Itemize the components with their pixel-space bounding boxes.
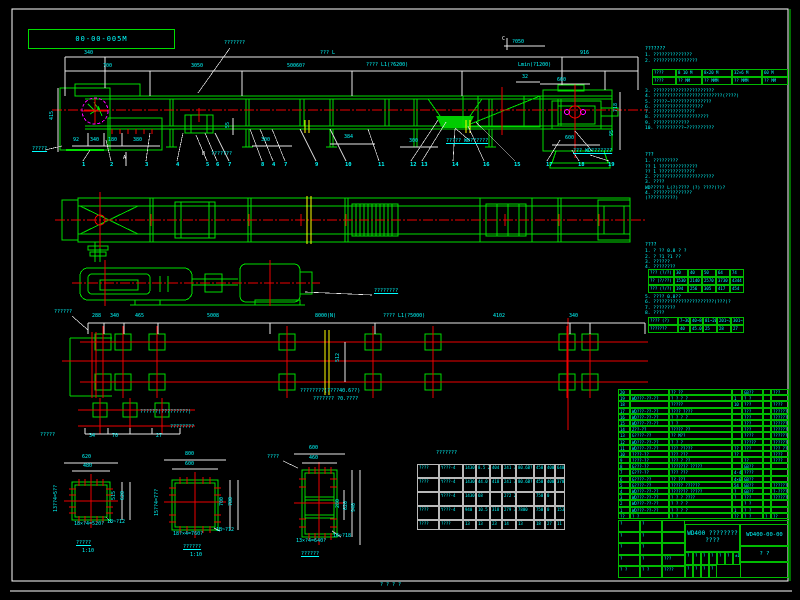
- dim-label: 940: [352, 503, 357, 512]
- dim-label: 600: [185, 462, 194, 467]
- dim-label: 8000(N): [315, 314, 336, 319]
- length-table-cell: 201~300: [717, 317, 731, 325]
- blank-cell: [740, 562, 789, 578]
- item-balloon: 12: [410, 162, 417, 168]
- item-balloon: 17: [546, 162, 553, 168]
- motor-table-row: ????????1313231413182711: [417, 520, 565, 530]
- rev-row: ??: [618, 520, 685, 532]
- dim-label: 620: [121, 491, 126, 500]
- dim-label: 718: [614, 103, 619, 112]
- motor-table-cell: ????: [439, 520, 463, 530]
- dim-label: ?????: [32, 147, 47, 152]
- dim-label: 620: [82, 455, 91, 460]
- dim-label: 600: [309, 446, 318, 451]
- approval-cell: ? ?: [740, 546, 789, 562]
- bom-cell: ? ?: [669, 513, 732, 519]
- sig-cell: ?: [725, 552, 733, 565]
- dim-label: 660: [557, 78, 566, 83]
- motor-table-cell: 450: [534, 478, 545, 492]
- item-balloon: 9: [315, 162, 318, 168]
- motor-table-cell: 450: [534, 464, 545, 478]
- motor-table-cell: 10.5 -5: [476, 506, 490, 520]
- dim-label: 515: [112, 491, 117, 500]
- item-balloon: 3: [145, 162, 148, 168]
- item-balloon: 8: [261, 162, 264, 168]
- notes-specs-cont: 5. ???? 0.8??6. ??????????????????????(?…: [645, 295, 731, 316]
- dim-label: 13×?4=640?: [296, 539, 326, 544]
- length-table-cell: 40~80: [690, 317, 703, 325]
- dim-label: 465: [135, 314, 144, 319]
- notes-lines: 3. ??????????????????????4. ????????????…: [645, 89, 739, 131]
- motor-table-cell: 14: [502, 520, 516, 530]
- speed-table-cell: 2140: [688, 277, 702, 285]
- note-line: (??????????): [645, 196, 725, 201]
- motor-table-row: Y???-4143068272 2347500: [417, 492, 565, 506]
- dim-label: 460: [309, 456, 318, 461]
- sig-cell: ?: [709, 565, 717, 578]
- item-balloon: 15: [514, 162, 521, 168]
- rev-cell: ?: [640, 543, 662, 555]
- length-table-cell: ???????: [648, 325, 678, 333]
- motor-table-cell: Y???-4: [439, 492, 463, 506]
- speed-table-cell: ?? (?/??): [648, 277, 674, 285]
- speed-table-cell: 50: [702, 269, 716, 277]
- motor-table-cell: Y???-4: [439, 478, 463, 492]
- dim-label: ???????: [211, 152, 232, 157]
- speed-table-cell: ??? (?/?): [648, 269, 674, 277]
- dim-label: 1B~?12: [107, 520, 125, 525]
- speed-table-cell: 40: [688, 269, 702, 277]
- dim-label: 340: [110, 314, 119, 319]
- dim-label: 384: [344, 135, 353, 140]
- note-line: 4. ?????????????????????????(????): [645, 94, 739, 99]
- dim-label: 50060?: [287, 64, 305, 69]
- item-balloon: 7: [228, 162, 231, 168]
- note-line: 8. ????: [645, 311, 731, 316]
- sig-cell: ?: [693, 565, 701, 578]
- motor-table-cell: 1430: [463, 478, 476, 492]
- dim-label: 300: [409, 139, 418, 144]
- motor-selection-table: ????Y???-414308.5 24.2404241 38?80.6B?45…: [417, 464, 565, 530]
- sig-row: ????: [685, 565, 740, 578]
- motor-table-cell: Y???-4: [439, 506, 463, 520]
- motor-table-cell: 18: [534, 520, 545, 530]
- item-balloon: 1: [82, 162, 85, 168]
- motor-table-cell: 370: [555, 478, 565, 492]
- motor-table-row: ????Y???-414308.5 24.2404241 38?80.6B?45…: [417, 464, 565, 478]
- dim-label: 13??4=5??: [54, 485, 59, 512]
- dim-label: 3050: [191, 64, 203, 69]
- rev-cell: ? ?: [640, 566, 662, 578]
- rev-row: ??: [618, 532, 685, 544]
- dim-label: Lmin(?1200): [518, 63, 551, 68]
- notes-lines: 1. ? ?? 0.8 ? ?2. ? ?1 ?1 ??3. ??????4. …: [645, 249, 687, 270]
- dim-label: 70: [112, 434, 118, 439]
- rev-cell: ?: [640, 520, 662, 532]
- notes-title: ???????: [645, 47, 698, 52]
- item-balloon: 10: [345, 162, 352, 168]
- dim-label: ????????: [374, 289, 398, 294]
- bom-cell: ? ?: [630, 513, 669, 519]
- dim-label: 600: [565, 136, 574, 141]
- motor-table-cell: ????: [417, 520, 439, 530]
- motor-table-cell: 940: [463, 506, 476, 520]
- dim-label: 95: [610, 130, 615, 136]
- notes-installation: ??????? 1. ??????????????2. ????????????…: [645, 47, 698, 64]
- sig-cell: ?: [717, 552, 725, 565]
- note-line: 6. ??????????????????????(???)?: [645, 300, 731, 305]
- motor-table-cell: 27: [545, 520, 555, 530]
- motor-table-cell: 418: [490, 478, 502, 492]
- length-table-row: ???????4045.0252827: [648, 325, 744, 333]
- dim-label: ??????: [301, 552, 319, 557]
- notes-table-row: ????8 10 M8×20 M32×6 M60 M: [652, 69, 788, 77]
- motor-table-row: ????Y???-494010.5 -5318279 3677800750015…: [417, 506, 565, 520]
- length-table-cell: ???? (?): [648, 317, 678, 325]
- dim-label: A: [123, 156, 126, 161]
- dim-label: 5008: [207, 314, 219, 319]
- dim-label: 620: [344, 501, 349, 510]
- notes-specs: ???? 1. ? ?? 0.8 ? ?2. ? ?1 ?1 ??3. ????…: [645, 243, 687, 270]
- length-table-cell: 81~200: [703, 317, 717, 325]
- notes-ordering: ??? 1. ????????? ?? 1 ?????????????? ?? …: [645, 153, 725, 202]
- motor-table-cell: 404: [490, 464, 502, 478]
- motor-table-cell: 80.6B?: [516, 478, 534, 492]
- dim-label: ?050: [512, 40, 524, 45]
- item-balloon: 6: [216, 162, 219, 168]
- dim-label: 4102: [493, 314, 505, 319]
- sig-cell: ?: [709, 552, 717, 565]
- motor-table-cell: 1430: [463, 492, 476, 506]
- dim-label: 92: [73, 138, 79, 143]
- bom-cell: ??: [771, 513, 789, 519]
- rev-cell: ????: [662, 566, 685, 578]
- note-line: 1. ? ?? 0.8 ? ?: [645, 249, 687, 254]
- notes-lines: 5. ???? 0.8??6. ??????????????????????(?…: [645, 295, 731, 316]
- motor-table-cell: 750: [534, 492, 545, 506]
- dim-label: ???? L1(?5000): [383, 314, 425, 319]
- sig-cell: ?: [693, 552, 701, 565]
- motor-table-cell: ????: [417, 464, 439, 478]
- sig-cell: ?: [685, 565, 693, 578]
- dim-label: 27: [156, 434, 162, 439]
- dim-label: 288: [92, 314, 101, 319]
- bom-cell: ??: [618, 513, 630, 519]
- dim-label: ???????: [436, 451, 457, 456]
- dim-label: 916: [580, 51, 589, 56]
- note-line: 2. ????????????????: [645, 59, 698, 64]
- item-balloon: 19: [608, 162, 615, 168]
- length-table-cell: 28: [717, 325, 731, 333]
- bom-cell: ??: [732, 513, 742, 519]
- motor-table-cell: 44.0 4.8: [476, 478, 490, 492]
- dim-label: 700: [103, 64, 112, 69]
- dim-label: ????? WD??????: [446, 139, 488, 144]
- item-balloon: 11: [378, 162, 385, 168]
- rev-cell: [662, 532, 685, 544]
- speed-table-cell: 30: [674, 269, 688, 277]
- motor-table-cell: 11: [555, 520, 565, 530]
- rev-cell: ???: [662, 555, 685, 567]
- rev-row: ? ?? ?????: [618, 566, 685, 578]
- bom-table: 20?? ??GB?????19WD???-??-??? ? ? ?1? ?18…: [618, 389, 789, 519]
- sheet-bottom-mark: ? ? ? ?: [380, 583, 401, 588]
- item-balloon: 4: [272, 162, 275, 168]
- rev-cell: ?: [640, 555, 662, 567]
- length-table-cell: 25: [703, 325, 717, 333]
- motor-table-cell: 272 234: [502, 492, 516, 506]
- sig-cell: ±13: [733, 552, 740, 565]
- motor-table-cell: [490, 492, 502, 506]
- motor-table-cell: 80.6B?: [516, 464, 534, 478]
- notes-table-1: ????8 10 M8×20 M32×6 M60 M?????? MM?? MM…: [652, 69, 788, 85]
- notes-lines: 1. ????????? ?? 1 ?????????????? ?? 1 ??…: [645, 159, 725, 201]
- dim-label: ????????(????40.6??): [300, 389, 360, 394]
- item-balloon: 18: [578, 162, 585, 168]
- motor-table-cell: 13: [476, 520, 490, 530]
- notes-table-cell: ????: [652, 69, 676, 77]
- speed-table-cell: 256: [688, 285, 702, 293]
- note-line: 1. ??????????????: [645, 53, 698, 58]
- dim-label: ??????: [54, 310, 72, 315]
- motor-table-cell: 400: [545, 464, 555, 478]
- motor-table-cell: 241 38?: [502, 464, 516, 478]
- dim-label: ??????: [183, 545, 201, 550]
- notes-title: ???: [645, 153, 725, 158]
- signature-grid: ??????±13????: [685, 552, 740, 578]
- dim-label: 340: [569, 314, 578, 319]
- dim-label: ??????(?????????): [140, 410, 191, 415]
- sig-cell: ?: [685, 552, 693, 565]
- dim-label: 700: [220, 497, 225, 506]
- notes-table-row: ?????? MM?? MMM?? MMM?? MM: [652, 77, 788, 85]
- dim-label: 340: [84, 51, 93, 56]
- speed-table-cell: 64: [716, 269, 730, 277]
- rev-cell: ?: [618, 520, 640, 532]
- drawing-title: WD400 ???????? ????: [685, 524, 740, 552]
- notes-table-cell: ????: [652, 77, 676, 85]
- dim-label: 18×?4=520?: [74, 522, 104, 527]
- dim-label: 800: [185, 452, 194, 457]
- motor-table-cell: [555, 492, 565, 506]
- dim-label: 55: [226, 122, 231, 128]
- drawing-number: WD400-00-00: [740, 524, 789, 546]
- speed-capacity-table: ??? (?/?)3040506474?? (?/??)153021402570…: [648, 269, 744, 293]
- speed-table-cell: 454: [730, 285, 744, 293]
- revision-grid: ???????????? ?? ?????: [618, 520, 685, 578]
- dim-label: 415: [50, 111, 55, 120]
- notes-table-cell: 32×6 M: [732, 69, 762, 77]
- speed-table-row: ??? (?/?)3040506474: [648, 269, 744, 277]
- length-table-cell: 301~400: [731, 317, 744, 325]
- motor-table-cell: 7800: [516, 506, 534, 520]
- dim-label: ???????: [224, 41, 245, 46]
- motor-table-cell: 153: [555, 506, 565, 520]
- dim-label: 280: [336, 499, 341, 508]
- rev-cell: ?: [618, 532, 640, 544]
- rev-row: ??: [618, 543, 685, 555]
- dim-label: 180: [108, 138, 117, 143]
- drawing-title-line2: ????: [686, 537, 739, 544]
- dim-label: ???? L1(?6200): [366, 63, 408, 68]
- rev-cell: ? ?: [618, 566, 640, 578]
- rev-cell: [662, 543, 685, 555]
- motor-table-cell: 13: [516, 520, 534, 530]
- dim-label: ?????: [40, 433, 55, 438]
- rev-row: ?????: [618, 555, 685, 567]
- dim-label: 340: [90, 138, 99, 143]
- motor-table-cell: 68: [476, 492, 490, 506]
- rev-cell: ?: [618, 555, 640, 567]
- dim-label: 34: [89, 434, 95, 439]
- dim-label: 300: [261, 138, 270, 143]
- sig-cell: ?: [701, 565, 709, 578]
- item-balloon: 4: [176, 162, 179, 168]
- bom-cell: ? ?: [742, 513, 763, 519]
- dim-label: ??????? ?0.????: [313, 397, 358, 402]
- speed-table-row: ??? (?/?)194256305417454: [648, 285, 744, 293]
- rev-cell: [662, 520, 685, 532]
- dim-label: 18?×4=760?: [173, 532, 203, 537]
- dim-label: 16~?18: [333, 534, 351, 539]
- speed-table-cell: 74: [730, 269, 744, 277]
- dim-label: ??? WD???????: [573, 149, 612, 154]
- item-balloon: 7: [284, 162, 287, 168]
- dim-label: 780: [229, 497, 234, 506]
- dim-label: ?????: [76, 541, 91, 546]
- dim-label: 380: [133, 138, 142, 143]
- motor-table-cell: 0: [545, 492, 555, 506]
- dim-label: ??? L: [320, 51, 335, 56]
- notes-table-cell: 8×20 M: [702, 69, 732, 77]
- dim-label: 15??4=7??: [155, 489, 160, 516]
- dim-label: 1B~?12: [216, 528, 234, 533]
- speed-table-cell: 4344: [730, 277, 744, 285]
- length-table: ???? (?)7~3040~8081~200201~300301~400???…: [648, 317, 744, 333]
- motor-table-cell: ????: [417, 506, 439, 520]
- item-balloon: 16: [483, 162, 490, 168]
- rev-cell: ?: [618, 543, 640, 555]
- drawing-zone-label: 00-00-005M: [28, 29, 175, 49]
- item-balloon: 14: [452, 162, 459, 168]
- bom-row: ??? ?? ???? ????: [618, 513, 789, 519]
- motor-table-cell: 13: [463, 520, 476, 530]
- speed-table-cell: ??? (?/?): [648, 285, 674, 293]
- speed-table-cell: 1530: [674, 277, 688, 285]
- note-line: 10. ??????????~??????????: [645, 126, 739, 131]
- drawing-title-line1: WD400 ????????: [686, 530, 739, 537]
- length-table-cell: 45.0: [690, 325, 703, 333]
- dim-label: 32: [522, 75, 528, 80]
- motor-table-cell: 1430: [463, 464, 476, 478]
- item-balloon: 5: [206, 162, 209, 168]
- notes-table-cell: ?? MMM: [702, 77, 732, 85]
- motor-table-cell: 318: [490, 506, 502, 520]
- dim-label: 1:10: [190, 553, 202, 558]
- speed-table-cell: 194: [674, 285, 688, 293]
- motor-table-cell: [417, 492, 439, 506]
- dim-label: C: [502, 37, 505, 42]
- dim-label: 480: [83, 464, 92, 469]
- length-table-cell: 27: [731, 325, 744, 333]
- notes-lines: 1. ??????????????2. ????????????????: [645, 53, 698, 64]
- motor-table-cell: 279 367: [502, 506, 516, 520]
- notes-table-cell: ?? MM: [676, 77, 702, 85]
- speed-table-cell: 417: [716, 285, 730, 293]
- rev-cell: ?: [640, 532, 662, 544]
- motor-table-cell: Y???-4: [439, 464, 463, 478]
- dim-label: ????????: [170, 425, 194, 430]
- notes-table-cell: ?? MMM: [732, 77, 762, 85]
- notes-table-cell: ?? MM: [762, 77, 788, 85]
- length-table-cell: 40: [678, 325, 690, 333]
- item-balloon: 13: [421, 162, 428, 168]
- motor-table-cell: ????: [417, 478, 439, 492]
- motor-table-cell: 0: [545, 506, 555, 520]
- notes-table-cell: 60 M: [762, 69, 788, 77]
- motor-table-cell: 400: [545, 478, 555, 492]
- dim-label: B: [202, 152, 205, 157]
- notes-installation-cont: 3. ??????????????????????4. ????????????…: [645, 89, 739, 131]
- notes-title: ????: [645, 243, 687, 248]
- dim-label: ????: [267, 455, 279, 460]
- cad-drawing-sheet: 00-00-005M ???????340??? L916?050C700305…: [0, 0, 800, 600]
- dim-label: 512: [336, 353, 341, 362]
- speed-table-cell: 305: [702, 285, 716, 293]
- motor-table-cell: 23: [490, 520, 502, 530]
- speed-table-row: ?? (?/??)15302140257037304344: [648, 277, 744, 285]
- motor-table-cell: [516, 492, 534, 506]
- motor-table-cell: 8.5 24.2: [476, 464, 490, 478]
- bom-cell: ?: [763, 513, 771, 519]
- motor-table-cell: 750: [534, 506, 545, 520]
- sig-cell: ?: [701, 552, 709, 565]
- length-table-row: ???? (?)7~3040~8081~200201~300301~400: [648, 317, 744, 325]
- motor-table-row: ????Y???-4143044.0 4.8418241 38?80.6B?45…: [417, 478, 565, 492]
- sig-row: ??????±13: [685, 552, 740, 565]
- motor-table-cell: 640: [555, 464, 565, 478]
- dim-label: 1:10: [82, 549, 94, 554]
- speed-table-cell: 2570: [702, 277, 716, 285]
- length-table-cell: 7~30: [678, 317, 690, 325]
- item-balloon: 2: [110, 162, 113, 168]
- motor-table-cell: 241 38?: [502, 478, 516, 492]
- speed-table-cell: 3730: [716, 277, 730, 285]
- notes-table-cell: 8 10 M: [676, 69, 702, 77]
